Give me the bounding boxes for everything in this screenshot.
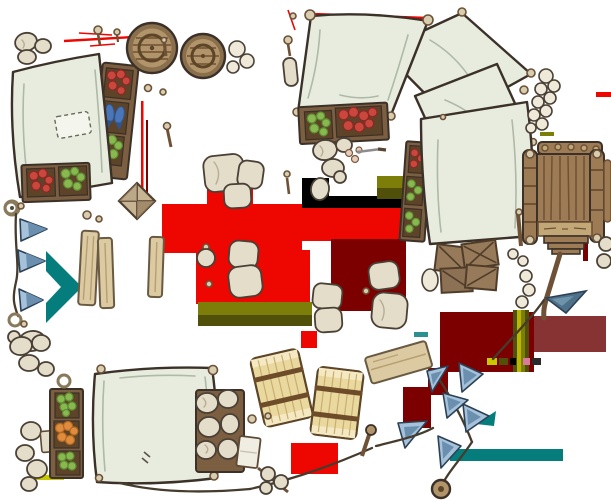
peg-mid bbox=[362, 425, 376, 456]
rope-ring-bottom bbox=[9, 314, 21, 326]
white-box bbox=[236, 436, 260, 468]
planks-left bbox=[78, 211, 164, 308]
pennant-by-hay bbox=[398, 421, 427, 448]
battlemap-asset-sheet bbox=[0, 0, 611, 500]
sack-group-top-left bbox=[13, 30, 51, 64]
crate-stack bbox=[422, 240, 499, 293]
stall-bottom-left bbox=[8, 331, 271, 491]
plank-sign bbox=[365, 341, 433, 384]
cart-drawbar bbox=[544, 254, 560, 318]
crate-diamond bbox=[119, 183, 155, 219]
crate-row-bottom bbox=[21, 163, 90, 202]
cart-right-rail bbox=[590, 150, 611, 242]
stall-top-left bbox=[5, 26, 139, 215]
hay-bale-left bbox=[249, 348, 314, 428]
hay-bale-right bbox=[309, 366, 365, 439]
pegs-below-barrels bbox=[145, 85, 167, 96]
rope-knot-left bbox=[258, 467, 288, 494]
cart-left-rail bbox=[523, 150, 537, 244]
barrel-small bbox=[181, 34, 225, 78]
sacks-by-barrels bbox=[227, 41, 254, 73]
sack-group-under-awning bbox=[310, 138, 386, 201]
artifact-stripe-cluster bbox=[487, 358, 541, 365]
cart-back-steps bbox=[544, 236, 588, 254]
cart-pennant bbox=[546, 291, 586, 313]
sack-chain-right bbox=[508, 249, 535, 308]
left-edge-stakes bbox=[283, 13, 299, 194]
tent-big bbox=[399, 102, 533, 246]
pole-knob-bottom bbox=[432, 480, 450, 498]
sacks-right-edge bbox=[597, 237, 611, 268]
stake-mid bbox=[164, 123, 172, 148]
barrel-large bbox=[127, 23, 177, 73]
pennant-left-3 bbox=[19, 289, 43, 311]
cart bbox=[523, 142, 611, 318]
crate-column-left bbox=[50, 389, 83, 478]
sack-by-crates bbox=[422, 269, 438, 291]
onions bbox=[346, 147, 363, 163]
market-map-scene bbox=[0, 0, 611, 500]
pennant-left-1 bbox=[20, 219, 47, 241]
stall-posts bbox=[94, 26, 120, 45]
pennant-left-2 bbox=[18, 250, 45, 272]
bunting-left bbox=[5, 202, 47, 353]
